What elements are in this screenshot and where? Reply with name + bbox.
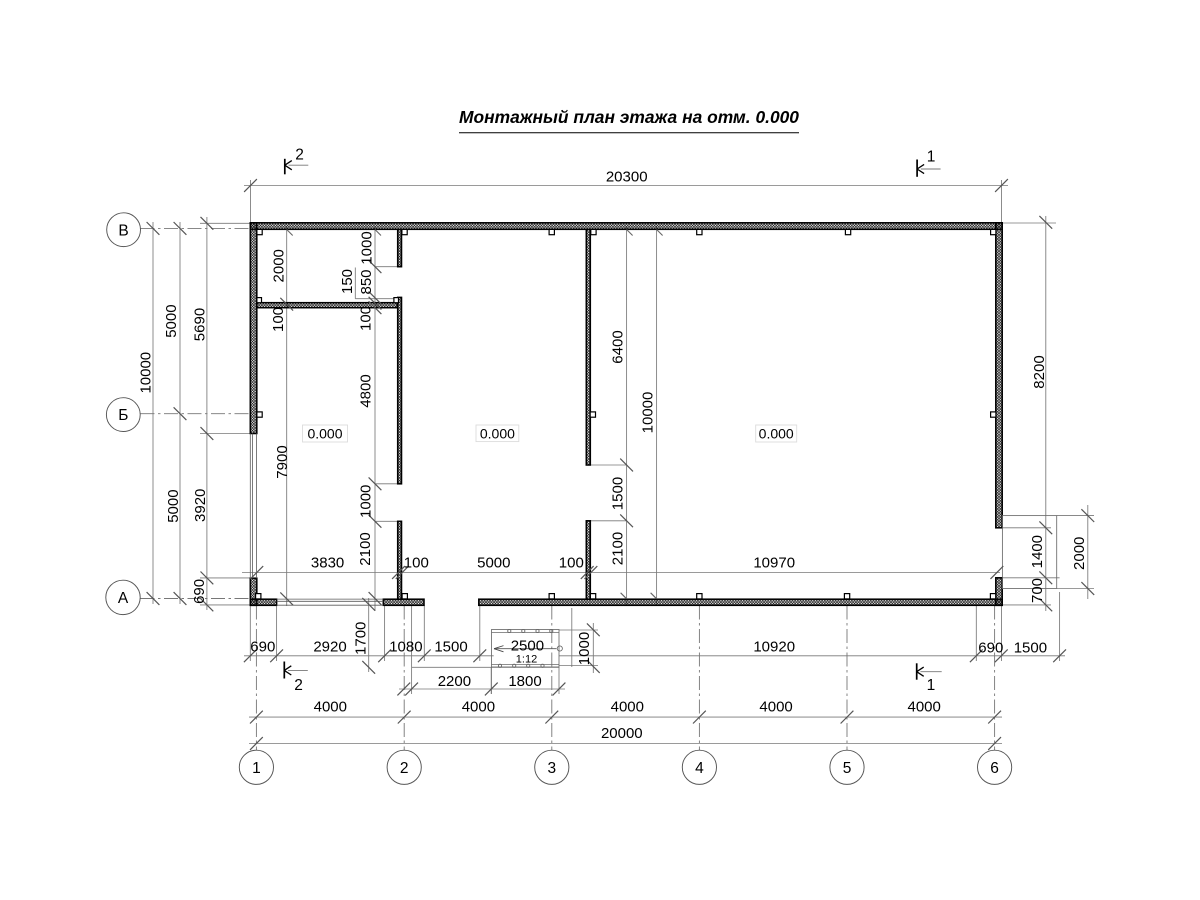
svg-text:1000: 1000 (358, 231, 375, 264)
svg-text:0.000: 0.000 (480, 426, 515, 442)
svg-text:1500: 1500 (1014, 640, 1047, 657)
svg-text:4000: 4000 (462, 699, 495, 716)
svg-text:10000: 10000 (138, 352, 155, 394)
svg-text:2500: 2500 (511, 638, 544, 655)
svg-text:1: 1 (252, 760, 261, 777)
svg-text:2920: 2920 (313, 639, 346, 656)
svg-text:1:12: 1:12 (516, 654, 537, 666)
svg-text:850: 850 (358, 269, 375, 294)
svg-text:1: 1 (927, 149, 936, 166)
svg-text:690: 690 (250, 639, 275, 656)
svg-text:А: А (118, 590, 129, 607)
svg-text:4000: 4000 (908, 699, 941, 716)
svg-text:100: 100 (270, 307, 287, 332)
svg-text:690: 690 (191, 579, 208, 604)
svg-text:150: 150 (339, 269, 356, 294)
svg-text:0.000: 0.000 (759, 426, 794, 442)
svg-text:100: 100 (358, 306, 375, 331)
svg-text:2000: 2000 (1071, 537, 1088, 570)
svg-text:100: 100 (559, 555, 584, 572)
svg-text:1500: 1500 (434, 639, 467, 656)
svg-text:5000: 5000 (165, 489, 182, 522)
svg-text:6400: 6400 (609, 330, 626, 363)
svg-text:4000: 4000 (759, 699, 792, 716)
svg-text:1700: 1700 (353, 622, 370, 655)
svg-text:100: 100 (404, 555, 429, 572)
svg-text:2000: 2000 (271, 249, 288, 282)
svg-text:1400: 1400 (1029, 535, 1046, 568)
svg-text:3920: 3920 (192, 489, 209, 522)
svg-text:1800: 1800 (508, 673, 541, 690)
svg-text:2: 2 (294, 677, 303, 694)
svg-text:3830: 3830 (311, 555, 344, 572)
svg-text:2: 2 (295, 147, 304, 164)
svg-text:5000: 5000 (163, 304, 180, 337)
svg-text:1500: 1500 (609, 477, 626, 510)
svg-text:10970: 10970 (753, 555, 795, 572)
svg-text:1000: 1000 (357, 485, 374, 518)
svg-text:2100: 2100 (609, 532, 626, 565)
svg-text:7900: 7900 (274, 445, 291, 478)
svg-text:6: 6 (990, 760, 999, 777)
svg-text:Монтажный план этажа на отм. 0: Монтажный план этажа на отм. 0.000 (459, 107, 799, 127)
svg-text:690: 690 (978, 640, 1003, 657)
svg-text:10920: 10920 (753, 639, 795, 656)
svg-text:4000: 4000 (314, 699, 347, 716)
svg-text:1000: 1000 (576, 632, 593, 665)
svg-text:3: 3 (547, 760, 556, 777)
svg-text:В: В (118, 222, 128, 239)
svg-text:1080: 1080 (389, 639, 422, 656)
svg-text:2200: 2200 (438, 673, 471, 690)
svg-text:4: 4 (695, 760, 704, 777)
svg-text:10000: 10000 (639, 392, 656, 434)
svg-text:4000: 4000 (611, 699, 644, 716)
svg-text:2: 2 (400, 760, 409, 777)
svg-text:5: 5 (843, 760, 852, 777)
svg-text:0.000: 0.000 (307, 426, 342, 442)
svg-text:Б: Б (118, 407, 128, 424)
svg-text:20000: 20000 (601, 725, 643, 742)
svg-text:8200: 8200 (1031, 355, 1048, 388)
svg-text:4800: 4800 (358, 374, 375, 407)
svg-text:700: 700 (1029, 578, 1046, 603)
svg-text:5690: 5690 (191, 308, 208, 341)
svg-text:20300: 20300 (606, 169, 648, 186)
svg-text:5000: 5000 (477, 555, 510, 572)
svg-text:2100: 2100 (357, 532, 374, 565)
svg-text:1: 1 (927, 677, 936, 694)
